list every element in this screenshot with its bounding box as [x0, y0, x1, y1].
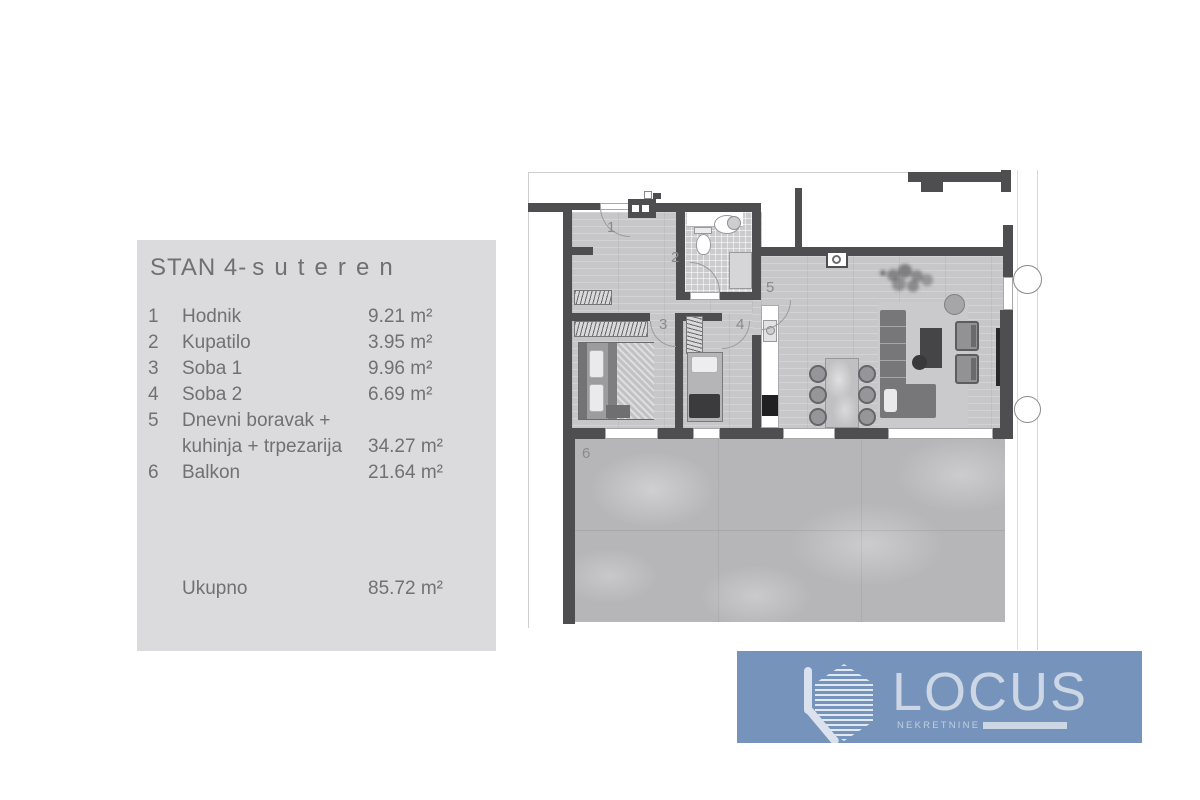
- wall: [563, 313, 650, 321]
- armchair-backrest: [971, 358, 976, 380]
- washing-machine: [727, 216, 741, 230]
- wall: [761, 247, 1005, 256]
- room-number: 4: [148, 382, 182, 408]
- chair: [858, 386, 876, 404]
- wardrobe: [574, 321, 648, 337]
- balcony-wall: [563, 428, 575, 624]
- toilet-bowl: [696, 234, 711, 255]
- room-area: 6.69 m²: [368, 382, 488, 408]
- wall: [720, 428, 783, 439]
- wall: [835, 428, 888, 439]
- armchair-backrest: [971, 325, 976, 347]
- shower: [729, 252, 752, 289]
- wall: [1000, 310, 1013, 436]
- room-name: Soba 2: [182, 382, 368, 408]
- room-row: 6 Balkon 21.64 m²: [148, 460, 488, 486]
- window: [1003, 277, 1013, 310]
- door-sill: [690, 292, 720, 300]
- wall: [993, 428, 1013, 439]
- chair: [858, 408, 876, 426]
- window: [888, 428, 993, 439]
- double-bed: [578, 342, 654, 420]
- window: [693, 428, 720, 439]
- wall: [720, 292, 761, 300]
- boiler-dial: [832, 255, 841, 264]
- chair: [858, 365, 876, 383]
- wall: [921, 182, 943, 192]
- window: [783, 428, 835, 439]
- plan-title: STAN 4-suteren: [150, 254, 403, 282]
- single-bed: [687, 352, 723, 422]
- room-label-bathroom: 2: [671, 250, 679, 265]
- armchair: [955, 321, 979, 351]
- meter-box: [644, 191, 652, 199]
- room-label-bedroom1: 3: [659, 317, 667, 332]
- floor-plan: 1 2 3 4 5 6: [528, 170, 1040, 650]
- room-number: 6: [148, 460, 182, 486]
- total-row: Ukupno 85.72 m²: [148, 576, 488, 602]
- window: [605, 428, 658, 439]
- wall: [572, 247, 593, 255]
- tv: [996, 328, 1000, 386]
- room-area: 21.64 m²: [368, 460, 488, 486]
- wall: [795, 188, 802, 247]
- room-name: Kupatilo: [182, 330, 368, 356]
- chair: [809, 365, 827, 383]
- pouf: [912, 355, 927, 370]
- meter-box: [653, 193, 661, 199]
- room-name: Balkon: [182, 460, 368, 486]
- chair: [809, 386, 827, 404]
- room-area: 9.21 m²: [368, 304, 488, 330]
- room-label-living: 5: [766, 280, 774, 295]
- bed-bench: [606, 405, 630, 418]
- room-number: 2: [148, 330, 182, 356]
- room-row: 1 Hodnik 9.21 m²: [148, 304, 488, 330]
- wall: [658, 428, 693, 439]
- toilet-tank: [694, 227, 712, 234]
- wall: [752, 335, 761, 436]
- info-panel: STAN 4-suteren 1 Hodnik 9.21 m² 2 Kupati…: [137, 240, 496, 651]
- wardrobe: [686, 316, 703, 354]
- balcony-tile-seam: [575, 530, 1005, 531]
- bed-blanket: [689, 394, 720, 418]
- balcony-tile-seam: [861, 438, 862, 622]
- doorway-floor: [752, 300, 761, 335]
- room-row: 4 Soba 2 6.69 m²: [148, 382, 488, 408]
- brand-name: LOCUS: [892, 665, 1088, 719]
- room-area: 9.96 m²: [368, 356, 488, 382]
- room-number: 5: [148, 408, 182, 460]
- wall: [676, 292, 690, 300]
- wall: [570, 203, 600, 210]
- brand-underline: [983, 722, 1067, 729]
- room-number: 3: [148, 356, 182, 382]
- chair: [809, 408, 827, 426]
- page: STAN 4-suteren 1 Hodnik 9.21 m² 2 Kupati…: [0, 0, 1200, 800]
- room-row: 2 Kupatilo 3.95 m²: [148, 330, 488, 356]
- total-area: 85.72 m²: [368, 576, 488, 602]
- wall: [1001, 170, 1011, 192]
- room-label-bedroom2: 4: [736, 317, 744, 332]
- room-row: 5 Dnevni boravak + kuhinja + trpezarija …: [148, 408, 488, 460]
- stove: [762, 395, 778, 416]
- sofa-pillow: [884, 389, 897, 412]
- room-number: 1: [148, 304, 182, 330]
- room-name: Soba 1: [182, 356, 368, 382]
- wall: [528, 203, 564, 212]
- bed-headboard: [579, 343, 587, 419]
- dining-table: [825, 358, 859, 428]
- armchair: [955, 354, 979, 384]
- wall: [908, 172, 1005, 182]
- room-row: 3 Soba 1 9.96 m²: [148, 356, 488, 382]
- boiler: [826, 251, 848, 268]
- electrical-panel-window: [642, 205, 649, 212]
- room-area: 34.27 m²: [368, 434, 488, 460]
- plot-boundary-line: [528, 172, 529, 628]
- bed-pillow: [589, 384, 604, 412]
- wall: [675, 313, 683, 436]
- side-table: [944, 294, 965, 315]
- room-name: Dnevni boravak + kuhinja + trpezarija: [182, 408, 368, 460]
- balcony-tile-seam: [718, 438, 719, 622]
- room-label-hallway: 1: [607, 220, 615, 235]
- brand-subtitle: NEKRETNINE: [897, 721, 980, 731]
- plant: [880, 270, 886, 276]
- room-name: Hodnik: [182, 304, 368, 330]
- wardrobe: [574, 290, 612, 305]
- bed-pillow: [589, 350, 604, 378]
- total-spacer: [148, 576, 182, 602]
- room-area: 3.95 m²: [368, 330, 488, 356]
- total-label: Ukupno: [182, 576, 368, 602]
- bed-pillow: [691, 356, 718, 373]
- room-label-balcony: 6: [582, 446, 590, 461]
- wall: [1003, 225, 1013, 277]
- logo-bar: LOCUS NEKRETNINE: [737, 651, 1142, 743]
- wall: [655, 203, 761, 212]
- electrical-panel-window: [632, 205, 639, 212]
- wall: [752, 212, 761, 300]
- room-list: 1 Hodnik 9.21 m² 2 Kupatilo 3.95 m² 3 So…: [148, 304, 488, 486]
- column: [1014, 396, 1041, 423]
- column: [1013, 265, 1042, 294]
